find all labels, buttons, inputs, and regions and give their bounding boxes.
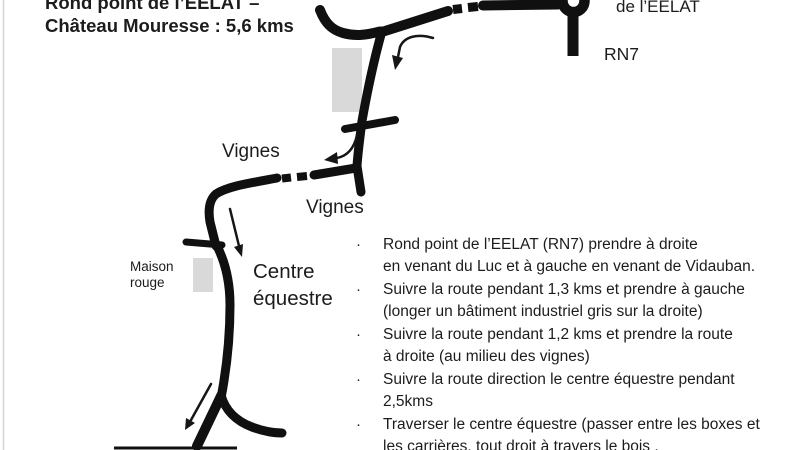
direction-item: · Suivre la route pendant 1,3 kms et pre… [351, 279, 789, 323]
road-west-vignes [314, 168, 356, 175]
direction-line: Rond point de l’EELAT (RN7) prendre à dr… [383, 234, 789, 256]
fork-right-branch [221, 395, 282, 433]
direction-line: en venant du Luc et à gauche en venant d… [383, 256, 789, 278]
maison-rouge-label: Maison rouge [130, 259, 174, 291]
sheet-title-line2: Château Mouresse : 5,6 kms [45, 14, 294, 37]
direction-item: · Traverser le centre équestre (passer e… [351, 414, 789, 450]
maison-rouge-label-line1: Maison [130, 259, 174, 275]
sheet-title: Rond point de l’EELAT – Château Mouresse… [45, 0, 294, 37]
road-to-centre-equestre [216, 244, 230, 398]
road-dash [468, 7, 478, 8]
directions-list: · Rond point de l’EELAT (RN7) prendre à … [351, 234, 789, 450]
maison-rouge-label-line2: rouge [130, 275, 174, 291]
sheet-title-line1: Rond point de l’EELAT – [45, 0, 294, 14]
direction-text: Rond point de l’EELAT (RN7) prendre à dr… [383, 234, 789, 278]
roundabout-icon [563, 0, 585, 12]
direction-text: Traverser le centre équestre (passer ent… [383, 414, 789, 450]
bullet-dot: · [351, 234, 383, 278]
industrial-building-icon [332, 48, 362, 112]
direction-line: (longer un bâtiment industriel gris sur … [383, 301, 789, 323]
direction-text: Suivre la route direction le centre éque… [383, 369, 789, 413]
straight-arrow-icon [230, 209, 239, 246]
road-to-roundabout [483, 5, 558, 6]
direction-text: Suivre la route pendant 1,3 kms et prend… [383, 279, 789, 323]
vignes-label-upper: Vignes [222, 141, 280, 163]
direction-line: Suivre la route pendant 1,3 kms et prend… [383, 279, 789, 301]
direction-line: les carrières, tout droit à travers le b… [383, 436, 789, 450]
road-dash [453, 9, 462, 10]
arrowhead-icon [324, 152, 338, 164]
arrowhead-icon [392, 55, 403, 70]
bullet-dot: · [351, 279, 383, 323]
direction-item: · Suivre la route direction le centre éq… [351, 369, 789, 413]
arrowhead-icon [234, 244, 243, 257]
direction-item: · Suivre la route pendant 1,2 kms et pre… [351, 324, 789, 368]
vignes-label-lower: Vignes [306, 197, 364, 219]
turn-arrow-icon [398, 36, 433, 57]
direction-line: 2,5kms [383, 391, 789, 413]
bullet-dot: · [351, 324, 383, 368]
road-dash [282, 178, 291, 179]
road-northwest [320, 10, 380, 35]
centre-equestre-label-line1: Centre [253, 258, 333, 285]
rn7-label: RN7 [604, 44, 639, 65]
road-to-roundabout [385, 11, 448, 31]
centre-equestre-label-line2: équestre [253, 285, 333, 312]
roundabout-label: de l’EELAT [616, 0, 700, 17]
directions-sheet: Rond point de l’EELAT – Château Mouresse… [0, 0, 800, 450]
centre-equestre-label: Centre équestre [253, 258, 333, 312]
direction-line: Suivre la route direction le centre éque… [383, 369, 789, 391]
direction-line: à droite (au milieu des vignes) [383, 346, 789, 368]
direction-item: · Rond point de l’EELAT (RN7) prendre à … [351, 234, 789, 278]
bullet-dot: · [351, 414, 383, 450]
crossroad-bar [345, 120, 395, 129]
direction-line: Suivre la route pendant 1,2 kms et prend… [383, 324, 789, 346]
direction-text: Suivre la route pendant 1,2 kms et prend… [383, 324, 789, 368]
maison-rouge-building-icon [193, 258, 213, 292]
direction-line: Traverser le centre équestre (passer ent… [383, 414, 789, 436]
road-dash [297, 176, 307, 177]
side-road-maison-rouge [186, 242, 222, 245]
road-bend-south [209, 178, 277, 246]
bullet-dot: · [351, 369, 383, 413]
